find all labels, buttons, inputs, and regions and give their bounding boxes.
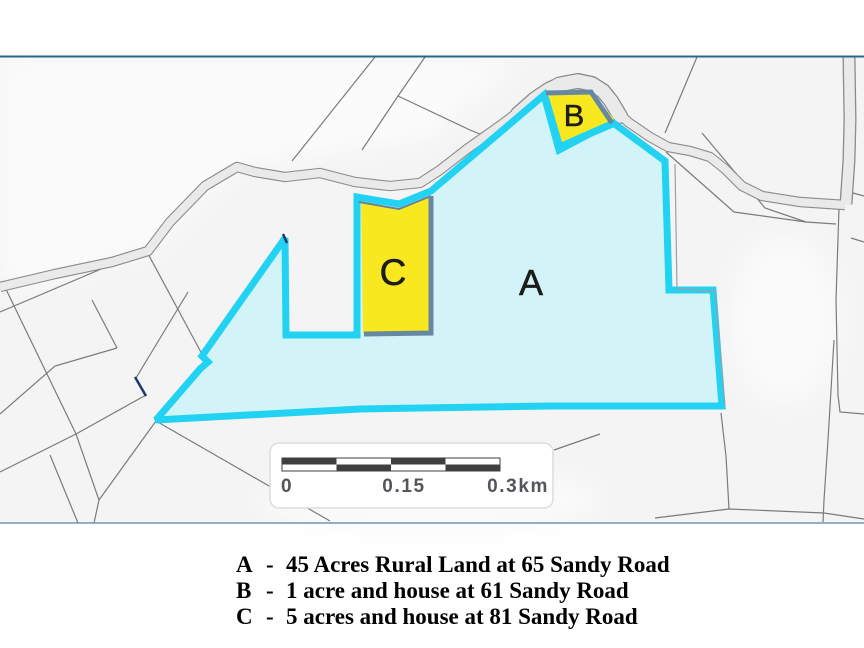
svg-text:0: 0 bbox=[281, 476, 292, 497]
svg-text:C-5 acres and house at 81 Sand: C-5 acres and house at 81 Sandy Road bbox=[236, 604, 638, 629]
svg-text:B-1 acre and house at 61 Sandy: B-1 acre and house at 61 Sandy Road bbox=[236, 578, 629, 603]
svg-text:A: A bbox=[519, 262, 543, 303]
svg-text:A-45 Acres Rural Land at 65 Sa: A-45 Acres Rural Land at 65 Sandy Road bbox=[236, 552, 670, 577]
svg-text:B: B bbox=[564, 98, 585, 133]
svg-text:C: C bbox=[380, 252, 407, 293]
svg-text:0.15: 0.15 bbox=[382, 476, 425, 497]
svg-text:0.3km: 0.3km bbox=[487, 476, 549, 497]
